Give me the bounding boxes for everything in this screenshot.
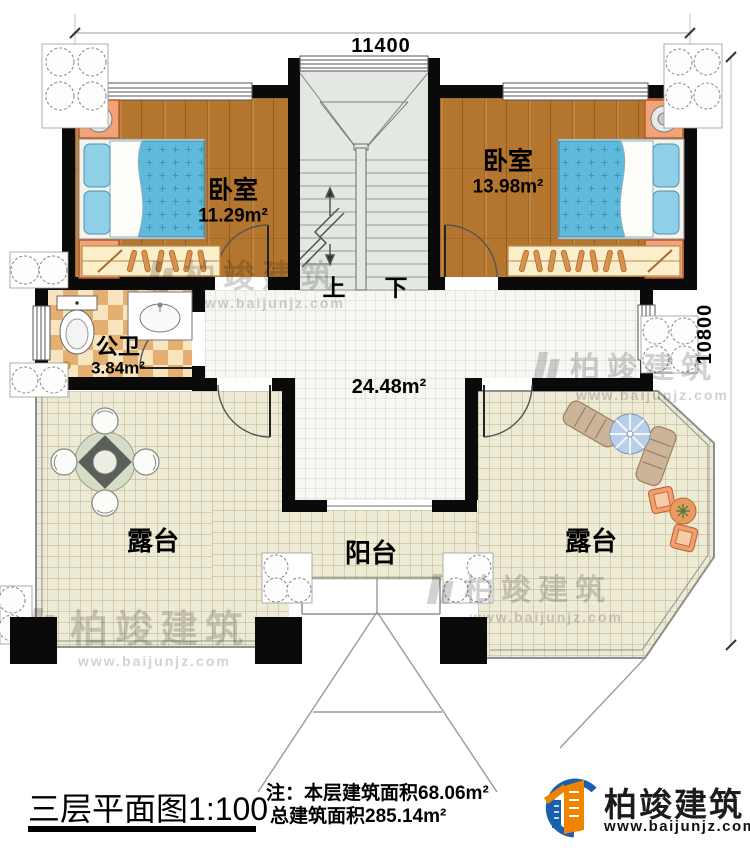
roof-lines: [258, 578, 645, 792]
bed-right: [558, 139, 684, 239]
bedroom-left-label: 卧室: [208, 179, 258, 204]
patio-chairs: [648, 486, 699, 553]
wardrobe-left: [82, 246, 220, 276]
note-line1: 本层建筑面积68.06m²: [304, 783, 489, 804]
terrace-table-set: [51, 408, 159, 516]
stair-center-rail: [356, 148, 366, 290]
stair-direction-marks: [297, 188, 344, 267]
sink: [128, 292, 192, 340]
plan-linework: [0, 0, 750, 848]
title-underline: [28, 826, 256, 832]
note-prefix: 注：: [266, 783, 304, 804]
bathroom-area: 3.84m²: [91, 360, 145, 377]
bathroom-label: 公卫: [96, 336, 140, 358]
bedroom-left-area: 11.29m²: [198, 207, 268, 226]
stairs-up-label: 上: [323, 277, 346, 300]
dimension-top: 11400: [351, 36, 411, 56]
plan-scale: 1:100: [188, 791, 268, 827]
bed-left: [79, 139, 205, 239]
wardrobe-right: [508, 246, 680, 276]
stairs-down-label: 下: [385, 277, 408, 300]
plan-title: 三层平面图1:100: [28, 784, 268, 830]
umbrella: [610, 414, 650, 454]
dimension-right: 10800: [695, 304, 715, 365]
note-line2: 总建筑面积285.14m²: [270, 806, 446, 827]
terrace-right-label: 露台: [565, 528, 617, 554]
toilet: [57, 296, 97, 354]
bedroom-right-label: 卧室: [483, 150, 533, 175]
floor-plan-canvas: 柏竣建筑 www.baijunjz.com 柏竣建筑 www.baijunjz.…: [0, 0, 750, 848]
terrace-left-label: 露台: [127, 528, 179, 554]
plan-title-text: 三层平面图: [28, 791, 188, 827]
brand-website: www.baijunjz.com: [604, 818, 750, 835]
bedroom-right-area: 13.98m²: [473, 178, 544, 197]
brand-logo-icon: [534, 772, 602, 842]
plan-note: 注：本层建筑面积68.06m² 总建筑面积285.14m²: [266, 782, 489, 828]
balcony-label: 阳台: [345, 540, 397, 566]
hall-area: 24.48m²: [352, 377, 427, 397]
